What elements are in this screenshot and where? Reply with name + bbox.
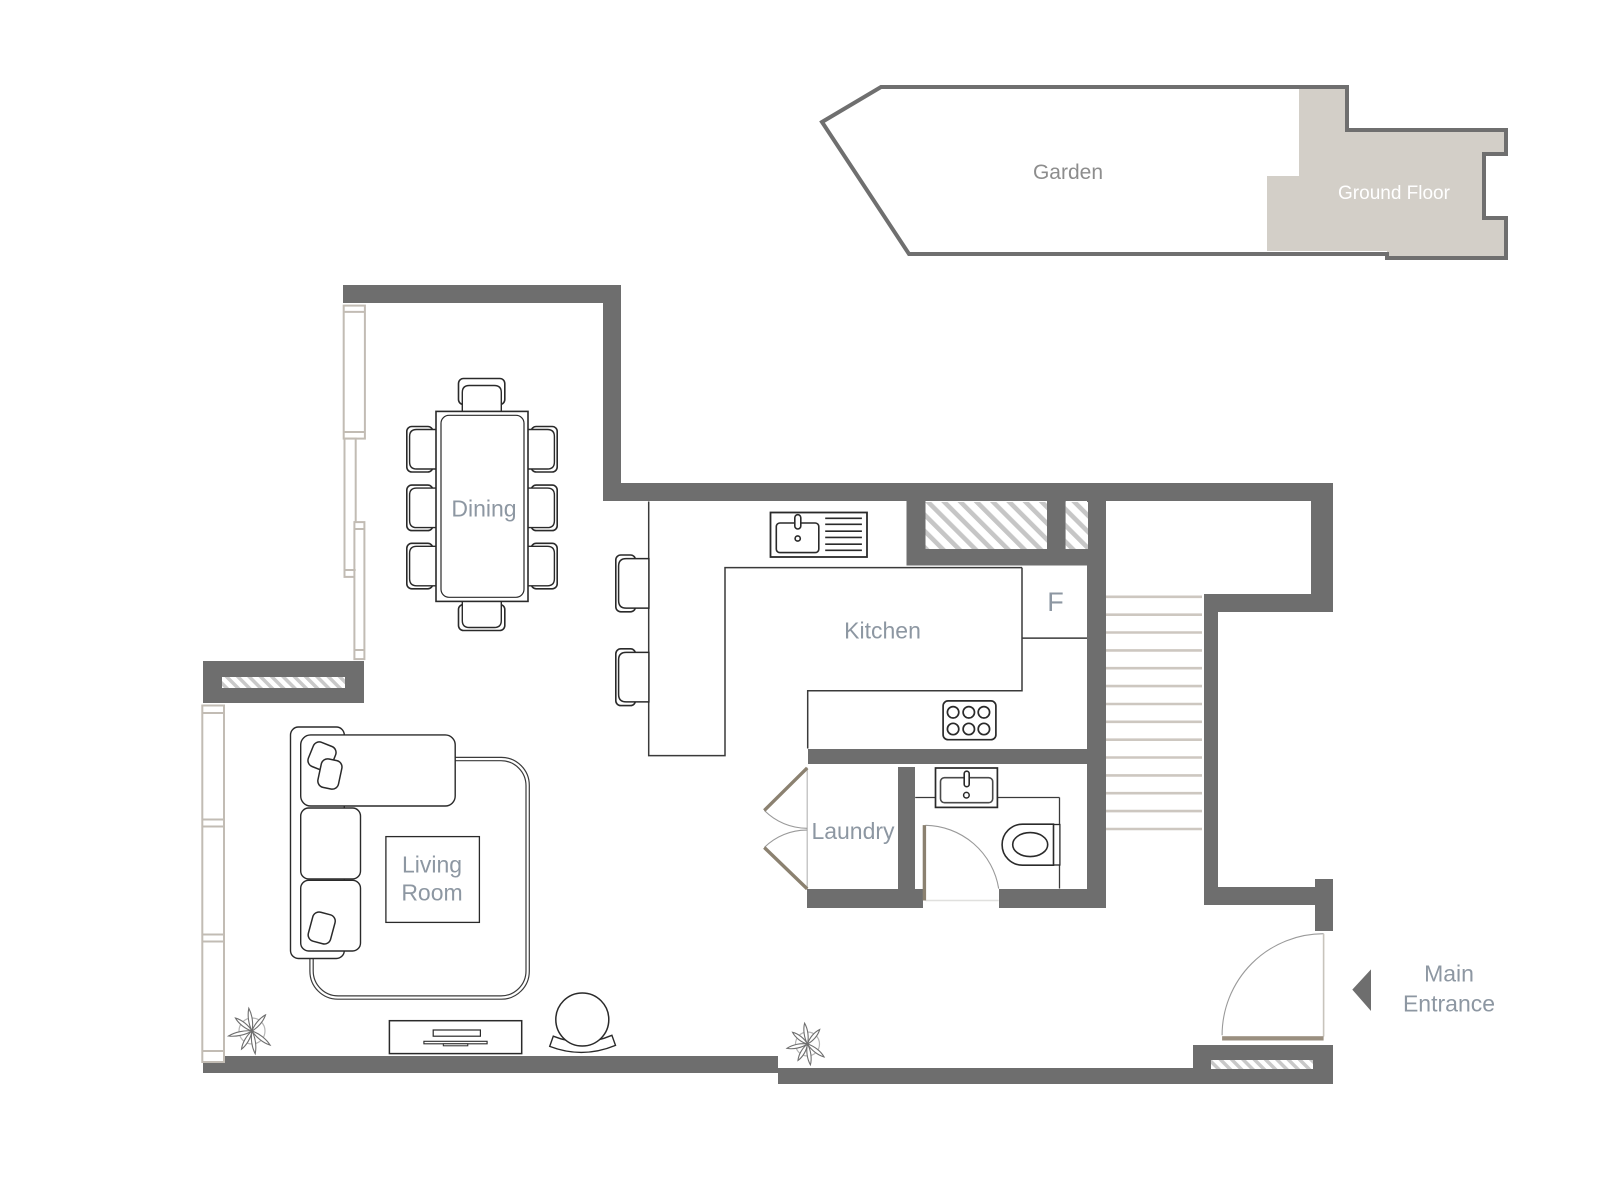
svg-text:Main: Main [1424, 960, 1474, 986]
svg-text:Kitchen: Kitchen [844, 618, 921, 644]
svg-text:Room: Room [401, 879, 462, 905]
svg-text:Living: Living [402, 851, 462, 877]
svg-text:Garden: Garden [1033, 161, 1103, 184]
svg-text:Entrance: Entrance [1403, 990, 1495, 1016]
svg-text:Dining: Dining [451, 496, 516, 522]
svg-text:F: F [1047, 587, 1064, 617]
svg-text:Ground Floor: Ground Floor [1338, 183, 1451, 204]
svg-text:Laundry: Laundry [811, 818, 895, 844]
